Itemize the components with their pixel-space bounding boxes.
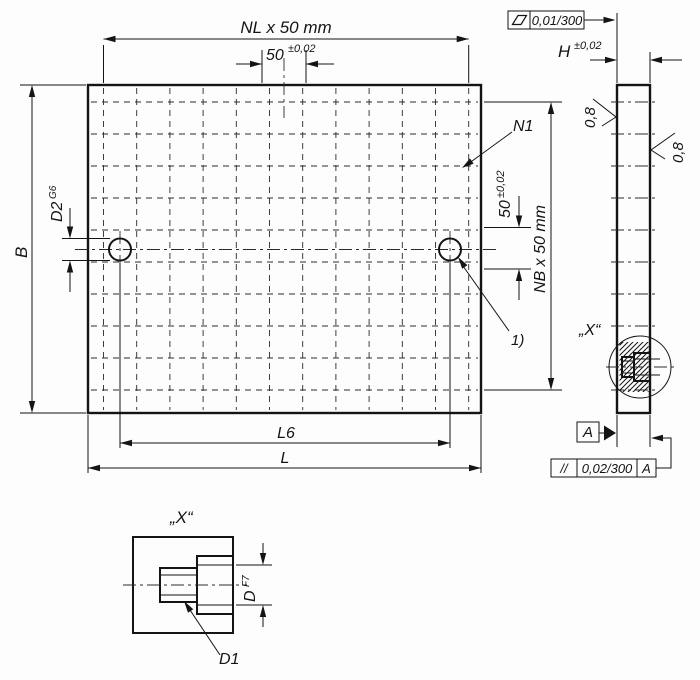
dim-50-right-tol: ±0,02 [495, 171, 507, 198]
base-plate-drawing: NL x 50 mm 50 ±0,02 B D2 G6 N1 [0, 0, 700, 680]
dim-d-value: D [242, 590, 259, 602]
surface-note-text: N1 [513, 118, 533, 135]
dim-d-f7: D F7 [236, 543, 272, 627]
arrowhead [457, 36, 469, 42]
surface-note-n1: N1 [462, 118, 533, 168]
grid-rows [91, 102, 478, 390]
arrowhead [548, 102, 554, 114]
roughness-right: 0,8 [651, 133, 687, 163]
leader-d1-text: D1 [219, 651, 239, 668]
dim-nb-text: NB x 50 mm [532, 205, 549, 293]
arrowhead [260, 553, 266, 565]
arrowhead [260, 605, 266, 617]
dim-50-top-tol: ±0,02 [288, 43, 315, 55]
dim-h: H ±0,02 [558, 40, 682, 63]
arrowhead [250, 61, 262, 67]
dim-h-tol: ±0,02 [574, 40, 601, 52]
roughness-right-text: 0,8 [670, 141, 687, 163]
arrowhead [458, 257, 467, 269]
datum-a: A [577, 422, 616, 442]
parallelism-frame: // 0,02/300 A [551, 435, 671, 477]
dim-h-value: H [558, 42, 571, 61]
grid-columns [104, 88, 469, 410]
dim-d-fit: F7 [241, 575, 252, 587]
arrowhead [67, 261, 73, 273]
arrowhead [29, 401, 35, 413]
flatness-frame: 0,01/300 [508, 11, 616, 29]
dim-l: L [88, 415, 481, 473]
dim-50-right: 50 ±0,02 [484, 171, 531, 300]
roughness-left-text: 0,8 [582, 106, 599, 128]
flatness-icon [513, 16, 527, 25]
dim-l6: L6 [120, 425, 450, 446]
footnote-ref: 1) [458, 257, 524, 349]
arrowhead [306, 61, 318, 67]
technical-drawing-page: NL x 50 mm 50 ±0,02 B D2 G6 N1 [0, 0, 700, 680]
arrowhead [67, 227, 73, 239]
arrowhead [469, 465, 481, 471]
parallelism-symbol: // [559, 461, 569, 476]
arrowhead [462, 158, 474, 168]
dim-d2-fit: G6 [48, 185, 59, 199]
roughness-left: 0,8 [582, 99, 616, 128]
footnote-text: 1) [511, 332, 524, 349]
arrowhead [438, 440, 450, 446]
dim-l6-text: L6 [277, 425, 295, 442]
parallelism-tol: 0,02/300 [582, 461, 633, 476]
dim-d2: D2 G6 [48, 185, 110, 292]
detail-x-marker: „X“ [578, 322, 676, 398]
arrowhead [120, 440, 132, 446]
dim-50-top-value: 50 [266, 47, 284, 64]
arrowhead [88, 465, 100, 471]
dim-d2-value: D2 [49, 201, 66, 222]
dim-nl: NL x 50 mm [104, 18, 469, 83]
parallelism-datum: A [641, 461, 651, 476]
arrowhead [29, 85, 35, 97]
arrowhead [548, 378, 554, 390]
dim-nl-text: NL x 50 mm [240, 18, 331, 37]
leader-d1: D1 [184, 601, 239, 668]
arrowhead [604, 17, 616, 23]
dim-b-text: B [12, 247, 31, 258]
dim-l-text: L [281, 450, 290, 467]
detail-title: „X“ [169, 508, 194, 527]
flatness-tol-text: 0,01/300 [532, 13, 583, 28]
detail-view-x: „X“ D F7 D1 [123, 508, 272, 668]
datum-a-text: A [582, 424, 593, 441]
detail-x-label: „X“ [578, 322, 602, 339]
arrowhead [605, 57, 617, 63]
datum-triangle-icon [604, 426, 616, 441]
arrowhead [104, 36, 116, 42]
arrowhead [650, 57, 662, 63]
front-view [75, 85, 500, 448]
dim-50-right-value: 50 [497, 200, 514, 218]
dim-50-top: 50 ±0,02 [236, 43, 334, 118]
arrowhead [516, 269, 522, 281]
arrowhead [516, 216, 522, 228]
arrowhead [651, 435, 663, 441]
dim-b: B [12, 85, 86, 413]
